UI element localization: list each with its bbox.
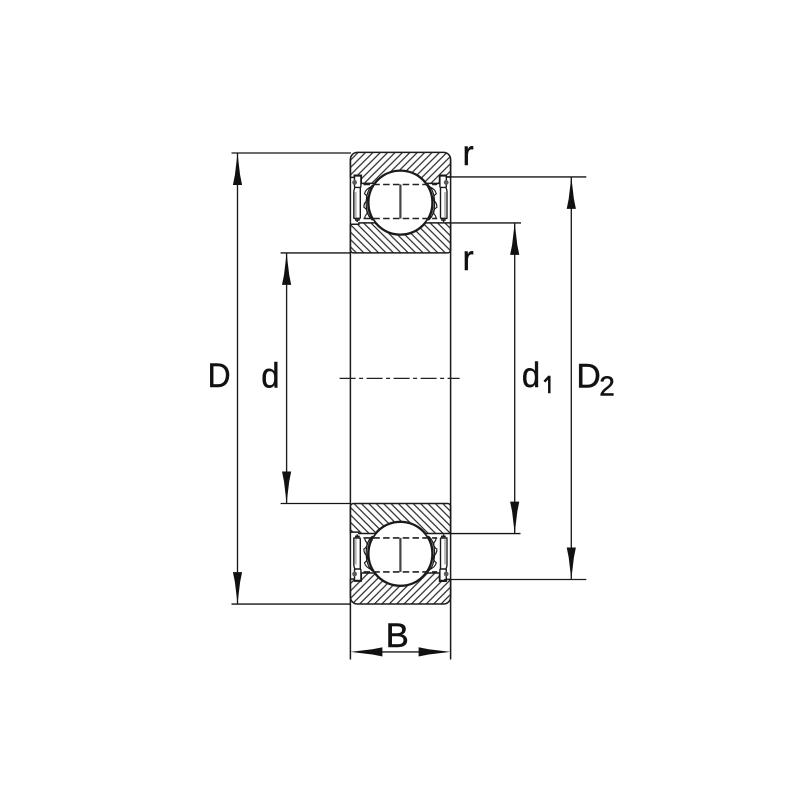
svg-text:r: r xyxy=(463,239,474,278)
svg-text:d: d xyxy=(261,356,279,395)
svg-text:r: r xyxy=(463,134,474,173)
svg-text:D: D xyxy=(208,357,231,395)
svg-text:2: 2 xyxy=(599,370,615,401)
svg-text:D: D xyxy=(576,357,600,395)
svg-text:d: d xyxy=(522,356,540,395)
svg-text:B: B xyxy=(386,617,409,655)
